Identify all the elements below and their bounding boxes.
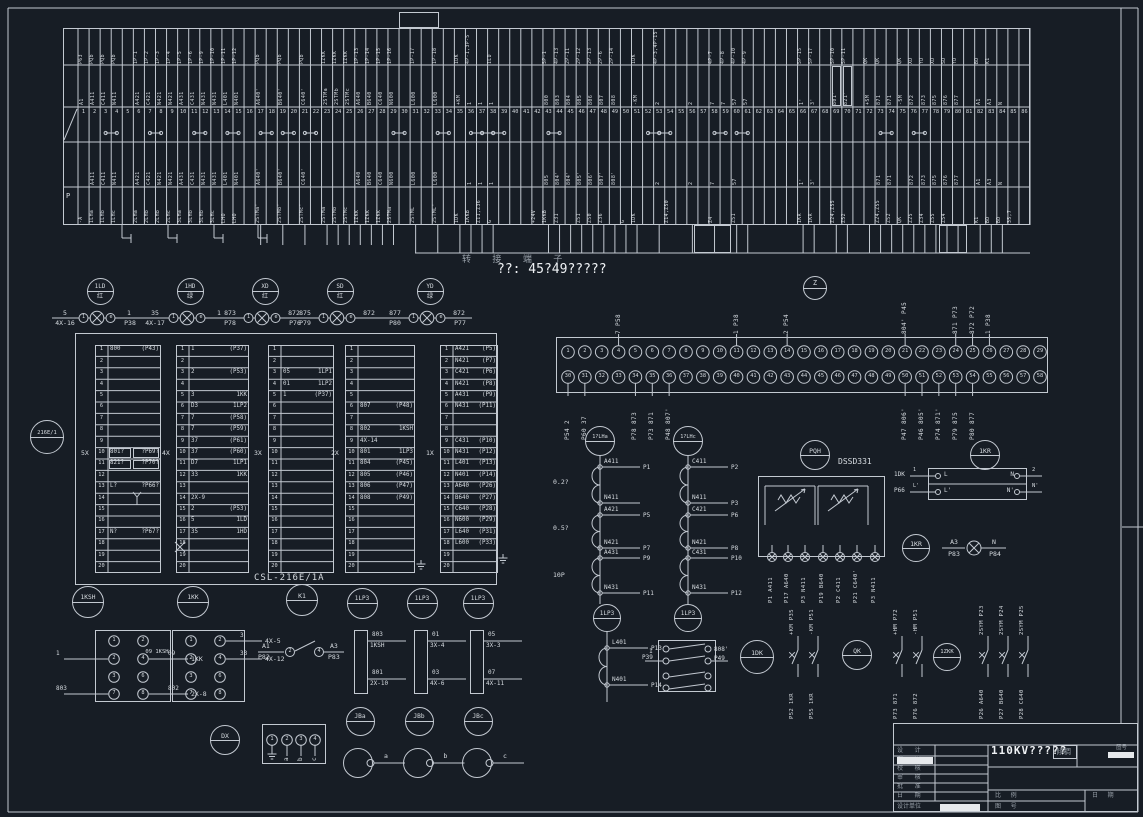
device-id: 1LP3 [408, 596, 437, 602]
strip-lower-wire: B640' [279, 144, 284, 185]
block-row-number: 6 [345, 404, 358, 409]
device-id: 216E/1 [31, 431, 63, 436]
strip-top-label: 1P-6 [190, 30, 195, 64]
strip-upper-wire: C640 [379, 67, 384, 105]
kk-box [172, 630, 245, 702]
strip-bottom-label: 1KKB [467, 189, 472, 223]
strip-lower-wire: 877 [955, 144, 960, 185]
top-tab [399, 12, 439, 28]
strip-terminal-number: 60 [731, 110, 742, 115]
block-row-number: 12 [268, 473, 281, 478]
strip-upper-wire: 2STMa [324, 67, 329, 105]
strip-bottom-label: 3LHa [179, 189, 184, 223]
strip-bottom-label: Z52 [843, 189, 848, 223]
block-row-number: 17 [176, 530, 189, 535]
label: 2 [288, 649, 293, 654]
block-row-number: 2 [176, 359, 189, 364]
strip-terminal-number: 1 [78, 110, 89, 115]
block-id: 1X [426, 450, 434, 457]
block-row-number: 4 [176, 382, 189, 387]
block-row-number: 7 [268, 416, 281, 421]
strip-sub-box [694, 225, 731, 253]
strip-bottom-label: 1LHb [102, 189, 107, 223]
block-row-number: 19 [176, 553, 189, 558]
block-row-number: 14 [176, 496, 189, 501]
label: 10P [553, 572, 565, 579]
strip-lower-wire: 804' [567, 144, 572, 185]
block-row-ref: 1KK [191, 393, 247, 399]
strip-bottom-label: Z24,Z55 [877, 189, 882, 223]
strip-terminal-number: 33 [432, 110, 443, 115]
block-row-ref: (P47) [360, 484, 413, 490]
block-row-number: 16 [440, 518, 453, 523]
strip-terminal-number: 8 [155, 110, 166, 115]
strip-upper-wire: A411 [91, 67, 96, 105]
strip-top-label: 1P-10 [212, 30, 217, 64]
strip-lower-wire: N421 [158, 144, 163, 185]
strip-top-label: YD [954, 30, 959, 64]
strip-top-label: 4P-7 [710, 30, 715, 64]
chord [842, 655, 872, 656]
block-row-number: 2 [268, 359, 281, 364]
block-row-number: 3 [440, 370, 453, 375]
tap-wire: A411 [604, 459, 618, 465]
pin-num: 3 [596, 349, 607, 354]
device-Z: Z [803, 276, 827, 300]
strip-upper-wire: +SM [866, 67, 871, 105]
pin-num: 41 [748, 374, 759, 379]
block-row-number: 17 [95, 530, 108, 535]
block-row-ref: (P27) [455, 496, 496, 502]
strip-terminal-number: 86 [1019, 110, 1030, 115]
label: L' [944, 488, 951, 494]
aux-switch-box [658, 640, 716, 692]
strip-upper-wire: 57 [733, 67, 738, 105]
strip-terminal-number: 25 [344, 110, 355, 115]
strip-lower-wire: B640 [368, 144, 373, 185]
block-row-ref: (P9) [455, 393, 496, 399]
strip-terminal-number: 27 [366, 110, 377, 115]
strip-lower-wire: A3 [988, 144, 993, 185]
strip-lower-wire: 871 [888, 144, 893, 185]
block-row-number: 6 [176, 404, 189, 409]
strip-lower-wire: A640' [257, 144, 262, 185]
block-row-number: 7 [440, 416, 453, 421]
contact-bottom-label: P27 B640 [1000, 679, 1006, 719]
strip-top-label: K1 [987, 30, 992, 64]
strip-upper-wire: B640 [368, 67, 373, 105]
label: e [199, 315, 204, 320]
relay-left-ref: 1DK [894, 472, 905, 478]
pin-number: 4 [215, 656, 225, 661]
block-row-ref: ?P66? [110, 484, 159, 490]
point-number: P78 [215, 320, 245, 327]
device-JBb: JBb [405, 707, 434, 736]
strip-upper-wire: 808 [612, 67, 617, 105]
device-PQH: PQH [800, 440, 830, 470]
block-row-number: 11 [345, 461, 358, 466]
lamp-SD: SD红 [327, 278, 354, 305]
strip-terminal-number: 28 [377, 110, 388, 115]
strip-top-label: QK [865, 30, 870, 64]
strip-upper-wire: -KM [634, 67, 639, 105]
device-id: 1ZKK [934, 650, 960, 656]
device-id: 1LD [88, 284, 113, 290]
strip-bottom-label: Z34 [921, 189, 926, 223]
label: P83 [328, 654, 340, 661]
pin-num: 47 [849, 374, 860, 379]
strip-sub-box [939, 225, 967, 253]
block-id: 2X [331, 450, 339, 457]
pin-number: 3 [186, 674, 196, 679]
strip-lower-wire: 1 [468, 144, 473, 185]
strip-bottom-label: Z25 [910, 189, 915, 223]
pin-num: 50 [900, 374, 911, 379]
strip-terminal-number: 29 [388, 110, 399, 115]
wire-number: 35 [142, 310, 168, 317]
strip-lower-wire: C640' [302, 144, 307, 185]
path [680, 558, 688, 593]
device-id: 1LP3 [594, 611, 620, 617]
pin-num: 32 [596, 374, 607, 379]
block-row-number: 18 [440, 541, 453, 546]
strip-top-label: 1P-17 [412, 30, 417, 64]
strip-upper-wire: L600 [412, 67, 417, 105]
strip-lower-wire: 57 [733, 144, 738, 185]
strip-lower-wire: 872 [910, 144, 915, 185]
line [295, 641, 315, 651]
strip-top-label: 5P-15 [799, 30, 804, 64]
strip-terminal-number: 5 [122, 110, 133, 115]
block-row-number: 15 [95, 507, 108, 512]
block-row-wire: 2X-9 [191, 496, 205, 502]
strip-upper-wire: 3' [811, 67, 816, 105]
chord [417, 291, 444, 292]
strip-upper-wire: A640' [257, 67, 262, 105]
strip-bottom-label: Z31 [556, 189, 561, 223]
block-row-number: 5 [345, 393, 358, 398]
strip-top-label: 1P-3 [157, 30, 162, 64]
block-4X [176, 345, 249, 573]
contact-bottom-label: P55 1KR [810, 679, 816, 719]
strip-bottom-label: Z52 [888, 189, 893, 223]
strip-bottom-label: 2LHb [146, 189, 151, 223]
callout: 1 P38 [986, 294, 992, 334]
strip-bottom-label: 2STMa [389, 189, 394, 223]
strip-bottom-label: 2LHa [135, 189, 140, 223]
block-row-ref: (P26) [455, 484, 496, 490]
device-1DK: 1DK [740, 640, 774, 674]
pin-num: 42 [765, 374, 776, 379]
contact-top-label: 2SYM P23 [980, 593, 986, 635]
label: P83 [942, 551, 966, 558]
block-row-ref: (P14) [455, 473, 496, 479]
strip-bottom-label: 1KR [799, 189, 804, 223]
strip-terminal-number: 39 [499, 110, 510, 115]
device-JBa: JBa [346, 707, 375, 736]
block-row-number: 14 [95, 496, 108, 501]
callout: P46 805' [919, 396, 925, 440]
pin-num: 44 [798, 374, 809, 379]
block-row-number: 20 [176, 564, 189, 569]
lamp-1LD: 1LD红 [87, 278, 114, 305]
block-row-number: 1 [268, 347, 281, 352]
block-row-number: 7 [95, 416, 108, 421]
label: 1 [56, 651, 60, 657]
pin-num: 29 [1034, 349, 1045, 354]
pin-number: 1 [109, 638, 119, 643]
block-row-number: 4 [440, 382, 453, 387]
block-row-ref: (P5) [455, 347, 496, 353]
strip-top-label: XD [910, 30, 915, 64]
device-id: PQH [801, 448, 829, 455]
rotated-label: c [312, 749, 318, 761]
link-box [354, 630, 368, 694]
phase-label: c [503, 753, 507, 760]
strip-lower-wire: 805' [578, 144, 583, 185]
strip-upper-wire: N431 [202, 67, 207, 105]
strip-top-label: 1P-2 [146, 30, 151, 64]
block-row-ref: 1LP1 [191, 461, 247, 467]
strip-top-label: PQb [279, 30, 284, 64]
pin-number: 7 [186, 691, 196, 696]
contact-top-label: 2SYM P24 [1000, 593, 1006, 635]
device-id: 1DK [741, 650, 773, 657]
line [792, 650, 798, 664]
tap-wire: C431 [692, 550, 706, 556]
tap-point: P12 [731, 591, 742, 597]
block-row-number: 2 [95, 359, 108, 364]
pin-number: 8 [138, 691, 148, 696]
tap-point: P11 [643, 591, 654, 597]
label: 0.5? [553, 525, 569, 532]
tap-wire: C421 [692, 507, 706, 513]
tap-wire: C411 [692, 459, 706, 465]
strip-header: P [66, 193, 70, 200]
block-row-number: 19 [268, 553, 281, 558]
title-block [893, 723, 1138, 812]
device-1KSH: 1KSH [72, 586, 104, 618]
pin-num: 25 [967, 349, 978, 354]
phase-label: a [384, 753, 388, 760]
block-row-number: 1 [176, 347, 189, 352]
chord [673, 441, 703, 442]
pin-num: 21 [900, 349, 911, 354]
strip-terminal-number: 22 [310, 110, 321, 115]
strip-terminal-number: 57 [698, 110, 709, 115]
strip-terminal-number: 78 [930, 110, 941, 115]
strip-lower-wire: 806' [589, 144, 594, 185]
strip-lower-wire: N [999, 144, 1004, 185]
lamp-1HD: 1HD绿 [177, 278, 204, 305]
pin-num: 52 [933, 374, 944, 379]
pin-num: 12 [748, 349, 759, 354]
strip-lower-wire: C431 [191, 144, 196, 185]
strip-bottom-label: G [489, 189, 494, 223]
strip-bottom-label: 2STMa [323, 189, 328, 223]
label: 33 [240, 651, 247, 657]
block-row-number: 8 [345, 427, 358, 432]
block-row-number: 19 [440, 553, 453, 558]
block-row-number: 20 [95, 564, 108, 569]
line [896, 650, 902, 664]
strip-top-label: PQb [91, 30, 96, 64]
tap-point: P2 [731, 465, 738, 471]
strip-upper-wire: 875 [933, 67, 938, 105]
label: 0.2? [553, 479, 569, 486]
pin-num: 9 [697, 349, 708, 354]
strip-top-label: 1ZKK [345, 30, 350, 64]
callout: P74 871' [936, 396, 942, 440]
device-1KK: 1KK [177, 586, 209, 618]
drawing-note: ??: 45?49????? [497, 263, 607, 276]
tap-wire: N411 [604, 495, 618, 501]
block-row-number: 9 [176, 439, 189, 444]
device-id: SD [328, 284, 353, 290]
block-row-ref: (P7) [455, 359, 496, 365]
chord [407, 603, 438, 604]
pin-num: 24 [950, 349, 961, 354]
strip-bottom-label: 3LHb [201, 189, 206, 223]
device-id: 1KR [903, 541, 929, 548]
device-id: 1KK [178, 595, 208, 601]
block-row-number: 11 [95, 461, 108, 466]
pin-num: 48 [866, 374, 877, 379]
device-id: JBa [347, 714, 374, 720]
strip-terminal-number: 83 [986, 110, 997, 115]
block-row-number: 10 [95, 450, 108, 455]
block-row-number: 15 [176, 507, 189, 512]
device-sub: 红 [328, 294, 353, 300]
block-row-number: 14 [268, 496, 281, 501]
block-row-ref: (P58) [191, 416, 247, 422]
pin-num: 15 [798, 349, 809, 354]
block-row-number: 13 [176, 484, 189, 489]
pin-num: 45 [815, 374, 826, 379]
strip-lower-wire: 875 [933, 144, 938, 185]
strip-terminal-number: 47 [587, 110, 598, 115]
meter-terminal: P1 A411 [769, 563, 775, 603]
label: 3X-4 [430, 643, 444, 649]
strip-top-label: 2P-6 [600, 30, 605, 64]
block-row-number: 1 [345, 347, 358, 352]
device-DX: DX [210, 725, 240, 755]
strip-upper-wire: 872 [910, 67, 915, 105]
filled-block [897, 757, 933, 764]
meter-terminal: P19 B640 [820, 563, 826, 603]
callout: P73 871 [649, 396, 655, 440]
rotated-label: a [284, 749, 290, 761]
pin-num: 53 [950, 374, 961, 379]
strip-terminal-number: 62 [753, 110, 764, 115]
strip-lower-wire: 808' [612, 144, 617, 185]
chord [740, 657, 774, 658]
path [680, 467, 688, 503]
strip-lower-wire: A1 [977, 144, 982, 185]
strip-lower-wire: 873 [922, 144, 927, 185]
chord [177, 602, 209, 603]
relay-right-ref: 2 [1032, 468, 1035, 474]
device-JBc: JBc [464, 707, 493, 736]
device-id: Z [804, 280, 826, 287]
strip-top-label: PQb [113, 30, 118, 64]
title-tag: 倾稠 [1056, 748, 1071, 756]
pin-num: 11 [731, 349, 742, 354]
strip-terminal-number: 30 [399, 110, 410, 115]
block-row-number: 19 [345, 553, 358, 558]
block-row-ref: 1HD [191, 530, 247, 536]
block-row-ref: 1LP2 [283, 382, 332, 388]
strip-top-label: 1P-13 [356, 30, 361, 64]
label: 808' [714, 647, 728, 653]
device-sub: 绿 [418, 294, 443, 300]
wire-number: 877 [382, 310, 408, 317]
strip-lower-wire: 7 [711, 144, 716, 185]
chord [585, 441, 615, 442]
block-row-number: 2 [440, 359, 453, 364]
strip-upper-wire: 871 [888, 67, 893, 105]
wire-number: 872 [356, 310, 382, 317]
device-id: 1LP3 [675, 611, 701, 617]
device-216E1: 216E/1 [30, 420, 64, 454]
tap-wire: N431 [692, 585, 706, 591]
strip-terminal-number: 40 [510, 110, 521, 115]
strip-lower-wire: N421 [169, 144, 174, 185]
pin-number: 1 [186, 638, 196, 643]
device-id: JBb [406, 714, 433, 720]
pin-number: 6 [138, 674, 148, 679]
chord [346, 721, 375, 722]
chord [72, 602, 104, 603]
strip-upper-wire: C411 [102, 67, 107, 105]
label: P84 [983, 551, 1007, 558]
device-id: 1?LHa [586, 435, 614, 440]
block-row-ref: 1LP3 [360, 450, 413, 456]
block-row-ref: (P53) [191, 370, 247, 376]
strip-terminal-number: 17 [255, 110, 266, 115]
device-1LP3-2: 1LP3 [463, 588, 494, 619]
tap-point: P9 [643, 556, 650, 562]
strip-terminal-number: 41 [521, 110, 532, 115]
label: 日 期 [1092, 793, 1117, 799]
strip-top-label: 1P-5 [179, 30, 184, 64]
chord [933, 657, 961, 658]
block-row-ref: (P48) [360, 404, 413, 410]
strip-upper-wire: C421 [147, 67, 152, 105]
block-row-number: 5 [176, 393, 189, 398]
pin-number: 3 [109, 674, 119, 679]
pin-num: 23 [933, 349, 944, 354]
label: P49 [714, 656, 725, 662]
device-sub: 绿 [178, 294, 203, 300]
strip-terminal-number: 59 [720, 110, 731, 115]
strip-lower-wire: N411 [113, 144, 118, 185]
contact-bottom-label: P28 C640 [1020, 679, 1026, 719]
block-row-number: 4 [95, 382, 108, 387]
strip-upper-wire: A431 [180, 67, 185, 105]
strip-upper-wire: 2 [689, 67, 694, 105]
titleblock-field: 图号 [1116, 746, 1127, 752]
strip-terminal-number: 20 [288, 110, 299, 115]
strip-bottom-label: Z55 [932, 189, 937, 223]
chord [970, 455, 1000, 456]
device-id: XD [253, 284, 278, 290]
block-1X [440, 345, 498, 573]
block-row-number: 2 [345, 359, 358, 364]
cad-drawing-canvas: 转 接 端 子 ??: 45?49????? DSSD331 CSL-216E/… [0, 0, 1143, 817]
callout: P78 873 [632, 396, 638, 440]
strip-terminal-number: 6 [133, 110, 144, 115]
